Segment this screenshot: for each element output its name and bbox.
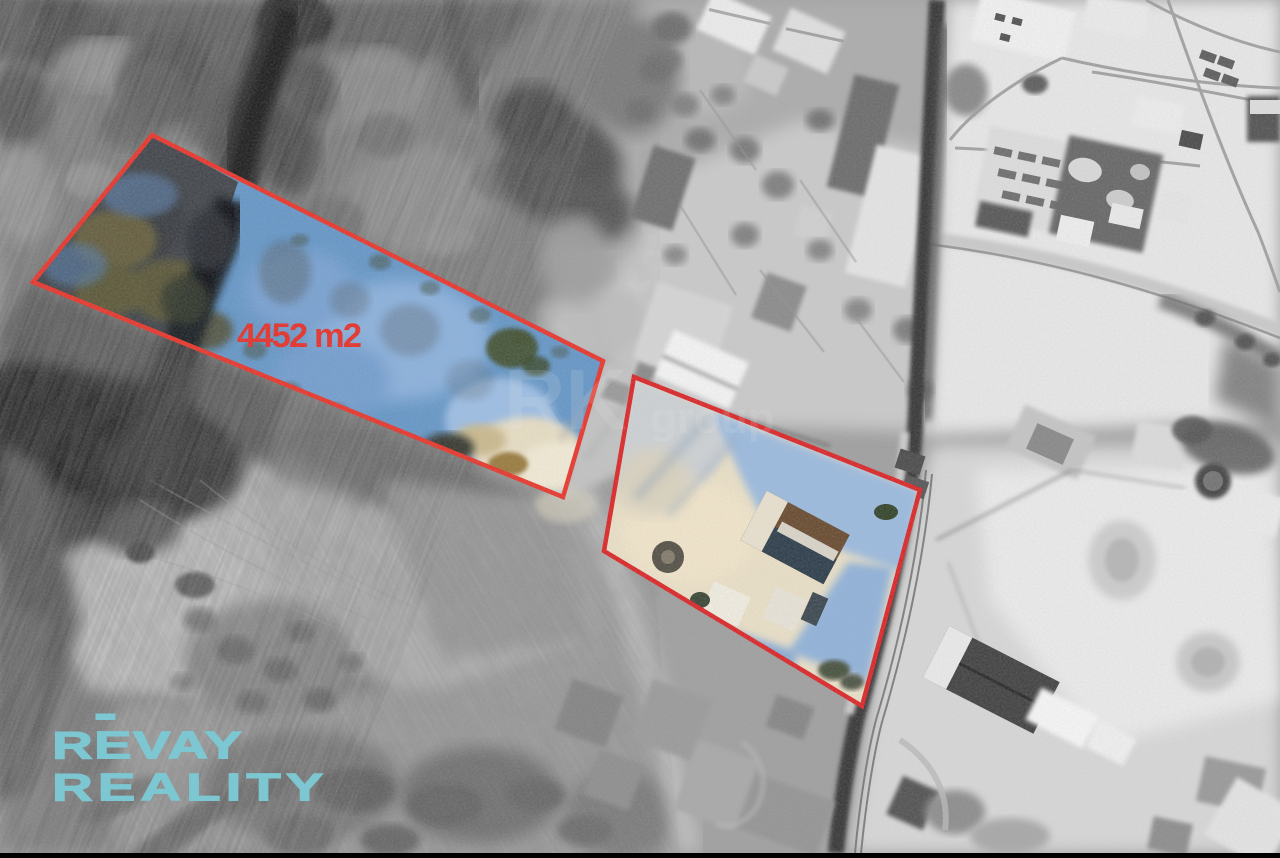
svg-text:REALITY: REALITY bbox=[52, 766, 328, 809]
svg-text:REVAY: REVAY bbox=[52, 724, 243, 767]
